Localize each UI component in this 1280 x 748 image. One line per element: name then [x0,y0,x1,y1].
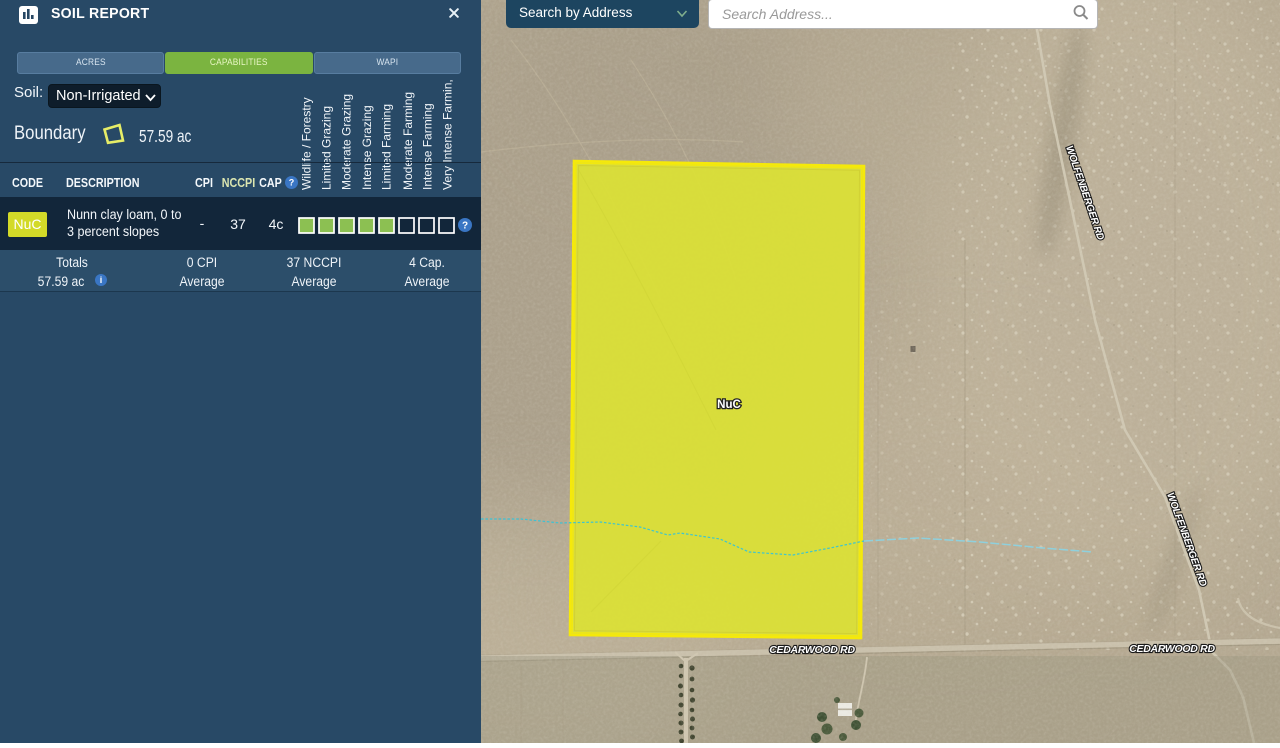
svg-text:Moderate Grazing: Moderate Grazing [340,94,354,190]
svg-text:?: ? [462,221,468,232]
svg-text:Limited Farming: Limited Farming [380,104,394,190]
svg-text:Limited Grazing: Limited Grazing [320,106,334,190]
svg-text:?: ? [289,178,295,188]
svg-text:Intense Grazing: Intense Grazing [360,105,374,190]
svg-text:Very Intense Farmin,: Very Intense Farmin, [441,80,455,190]
svg-text:CEDARWOOD RD: CEDARWOOD RD [1129,643,1215,655]
svg-text:i: i [100,275,103,285]
svg-text:CEDARWOOD RD: CEDARWOOD RD [769,644,855,656]
svg-text:Wildlife / Forestry: Wildlife / Forestry [300,97,314,190]
svg-text:Moderate Farming: Moderate Farming [401,92,415,190]
svg-text:Intense Farming: Intense Farming [421,103,435,190]
svg-text:NuC: NuC [717,399,741,411]
